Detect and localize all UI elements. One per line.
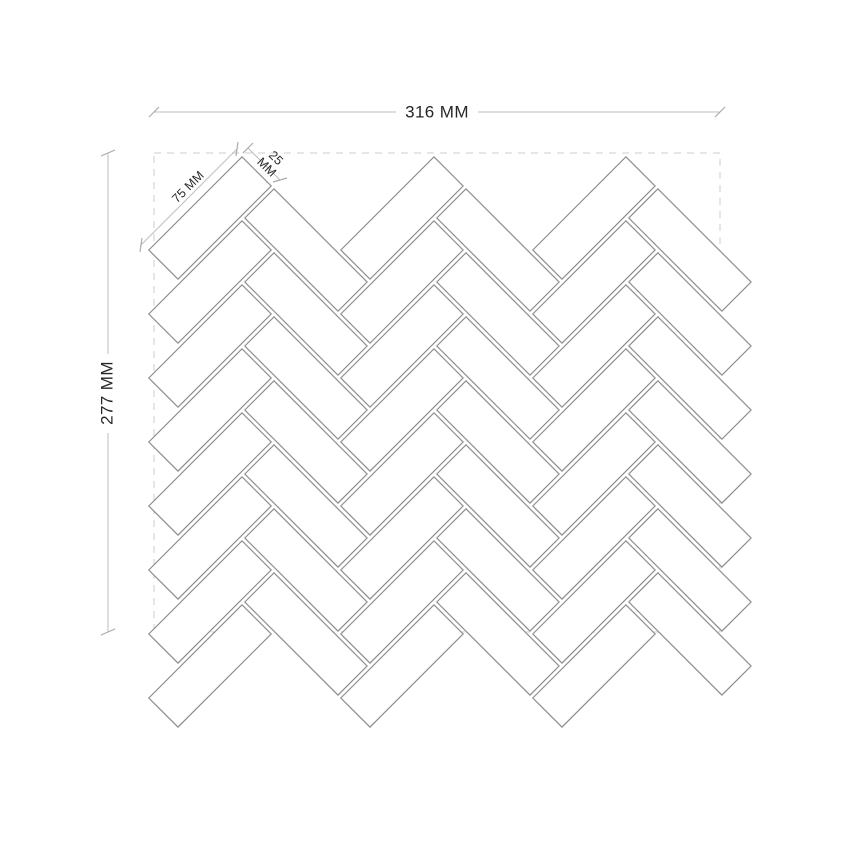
tile-pattern-layer [149, 157, 751, 727]
mosaic-dimension-diagram: 316 MM 277 MM 75 MM 25MM [0, 0, 860, 860]
sheet-height-label: 277 MM [98, 361, 117, 425]
herringbone-sheet-drawing: 316 MM 277 MM 75 MM 25MM [0, 0, 860, 860]
sheet-width-label: 316 MM [405, 103, 469, 122]
dimension-tick [273, 178, 287, 182]
